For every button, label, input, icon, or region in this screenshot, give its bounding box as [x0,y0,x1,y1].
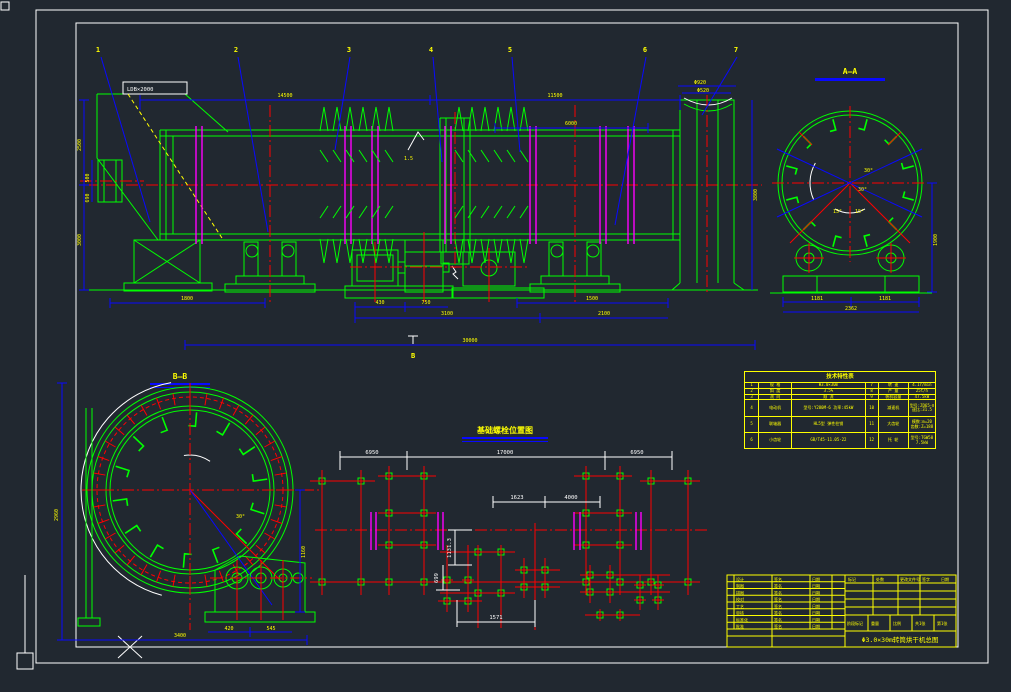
cut-mark-b-label: B [411,352,415,360]
spec-cell: 联轴器 [759,417,792,433]
discharge-hood [672,95,744,295]
spec-cell: 4 [745,400,759,417]
dim-aa-total: 2362 [845,306,857,312]
slope-mark [408,132,424,150]
tb-signature-cell: 签名 [774,589,782,595]
pickbox-cursor [1,2,9,10]
dim-fnd-left: 6950 [365,450,378,456]
drawing-title: Φ3.0×30m转筒烘干机总图 [862,635,939,644]
support-station-1 [225,105,315,302]
spec-cell: 4.1r/min [908,383,935,389]
callout-1: 1 [96,46,100,54]
bb-feed-pipe [78,408,100,626]
tb-signature-cell: 批准 [736,623,744,629]
tb-signature-cell: 审核 [736,610,744,616]
dim-bot5: 2100 [598,311,610,317]
drawing-canvas[interactable]: LDB×2000 500 690 [0,0,1011,692]
title-block: 标记 处数 更改文件号 签字 日期 阶段标记 重量 比例 共1张 第1张 设计签… [727,575,956,647]
callout-5: 5 [508,46,512,54]
section-aa-underline [815,78,885,81]
dim-feed2: 690 [85,193,91,202]
tb-signature-cell: 日期 [812,583,820,589]
tb-info-cell: 共1张 [915,620,925,626]
spec-cell: 型号:Y280M-6 功率:45kW [792,400,865,417]
sheet-frame [1,2,988,669]
spec-cell: 托 轮 [878,433,908,449]
tb-signature-cell: 日期 [812,603,820,609]
tb-signature-cell: 签名 [774,616,782,622]
section-bb-label: B—B [173,372,188,381]
tb-signature-cell: 设计 [736,576,744,582]
ucs-icon [17,575,33,669]
tb-signature-cell: 校对 [736,596,744,602]
tb-info-cell: 第1张 [937,620,947,626]
dim-fnd-v2: 699 [434,573,440,583]
tb-signature-cell: 签名 [774,596,782,602]
dim-aa-height: 1900 [933,234,939,246]
spec-cell: 11 [865,417,878,433]
aa-angle-label: 30° [864,168,873,174]
spec-cell: 电动机 [759,400,792,417]
dim-fnd-v1: 1131.3 [447,538,453,558]
foundation-plan: 基础螺栓位置图 6950 17000 6950 1623 [310,425,710,630]
callout-7: 7 [734,46,738,54]
tb-signature-cell: 日期 [812,610,820,616]
foundation-tyre-lines [371,512,641,550]
dim-bot1: 1800 [181,296,193,302]
dim-top2: 11500 [547,93,562,99]
dim-bot2: 430 [375,300,384,306]
tb-signature-cell: 标准化 [736,616,748,622]
tb-signature-cell: 描图 [736,589,744,595]
dim-right-v: 3800 [753,189,759,201]
dim-feed1: 500 [85,173,91,182]
spec-cell: 10 [865,400,878,417]
section-aa: A—A 30° 30° 15° 15° [770,67,939,312]
tb-signature-cell: 签名 [774,610,782,616]
main-view: LDB×2000 500 690 [77,46,762,360]
dim-left1: 2500 [77,139,83,151]
dim-top3: 6000 [565,121,577,127]
bb-angle-label: 30° [236,514,245,520]
dim-fnd-d2: 4000 [564,495,577,501]
aa-angle-label: 15° [833,209,842,215]
hopper-tag-label: LDB×2000 [127,87,154,93]
callout-2: 2 [234,46,238,54]
dim-aa-right: 1181 [879,296,891,302]
tb-signature-cell: 签名 [774,583,782,589]
section-bb: B—B 30° [54,372,320,645]
dim-hood1: Φ920 [694,80,706,86]
dim-hood2: Φ520 [697,88,709,94]
tb-signature-cell: 工艺 [736,604,744,609]
tb-header-cell: 标记 [848,576,856,582]
aa-angle-label: 15° [855,209,864,215]
tb-info-cell: 阶段标记 [847,620,863,626]
spec-cell: 模数:m=20 齿数:Z=188 [908,417,935,433]
main-dimensions [79,86,755,350]
spec-cell: 5 [745,417,759,433]
callout-3: 3 [347,46,351,54]
foundation-centerlines [310,466,710,630]
dim-fnd-right: 6950 [630,450,643,456]
tb-signature-cell: 日期 [812,576,820,582]
spec-table-title: 技术特性表 [745,372,936,383]
foundation-title: 基础螺栓位置图 [476,425,533,435]
slope-label: 1.5 [404,156,413,162]
spec-table: 技术特性表 1规 格Φ3.0×30m7转 速4.1r/min 2斜 度3.5%8… [744,371,936,449]
cad-viewport: LDB×2000 500 690 [0,0,1011,692]
spec-cell: 12 [865,433,878,449]
spec-cell: 6 [745,433,759,449]
tb-info-cell: 比例 [893,620,901,626]
feed-hopper [97,82,228,240]
spec-cell: 型号:ZQ65-Ⅱ 速比:31.5 [908,400,935,417]
dim-fnd-d1: 1623 [510,495,523,501]
spec-cell: 小齿轮 [759,433,792,449]
callout-4: 4 [429,46,433,54]
tb-signature-cell: 日期 [812,616,820,622]
dim-bb-right: 1160 [301,546,307,558]
dim-bot4: 3100 [441,311,453,317]
tb-signature-cell: 制图 [736,583,744,589]
feed-support [124,240,212,291]
foundation-dimensions [340,451,672,627]
dim-bb-gb2: 545 [266,626,275,632]
dim-aa-left: 1181 [811,296,823,302]
dim-left2: 3000 [77,234,83,246]
tb-signature-cell: 签名 [774,576,782,582]
bb-white-arcs [81,383,210,596]
tb-header-cell: 签字 [922,576,930,582]
tb-signature-cell: 签名 [774,603,782,609]
dim-bb-bottom: 3400 [174,633,186,639]
tb-header-cell: 日期 [941,576,949,582]
dim-bb-left: 2960 [54,509,60,521]
dim-top1: 14500 [277,93,292,99]
dim-bb-gb1: 420 [224,626,233,632]
tb-header-cell: 更改文件号 [900,576,920,582]
cut-mark-b [408,336,418,344]
tb-signature-cell: 签名 [774,623,782,629]
tb-signature-cell: 日期 [812,589,820,595]
aa-white-arcs [810,163,865,213]
spec-cell: GB/T45-11.05-22 [792,433,865,449]
section-aa-label: A—A [843,67,858,76]
spec-cell: HL5型 弹性柱销 [792,417,865,433]
dim-bot6: 1500 [586,296,598,302]
foundation-bolts [316,470,694,621]
dim-fnd-mid: 17000 [497,450,514,456]
spec-cell: 型号:TGW50 7.5kW [908,433,935,449]
tb-signature-cell: 日期 [812,623,820,629]
dim-overall: 30000 [462,338,477,344]
tb-signature-cell: 日期 [812,596,820,602]
tb-info-cell: 重量 [871,620,879,626]
spec-cell: 大齿轮 [878,417,908,433]
spec-cell: 减速机 [878,400,908,417]
dim-bot3: 750 [421,300,430,306]
dim-fnd-bottom: 1571 [489,615,502,621]
aa-angle-label: 30° [858,187,867,193]
tb-header-cell: 处数 [876,576,884,582]
callout-6: 6 [643,46,647,54]
